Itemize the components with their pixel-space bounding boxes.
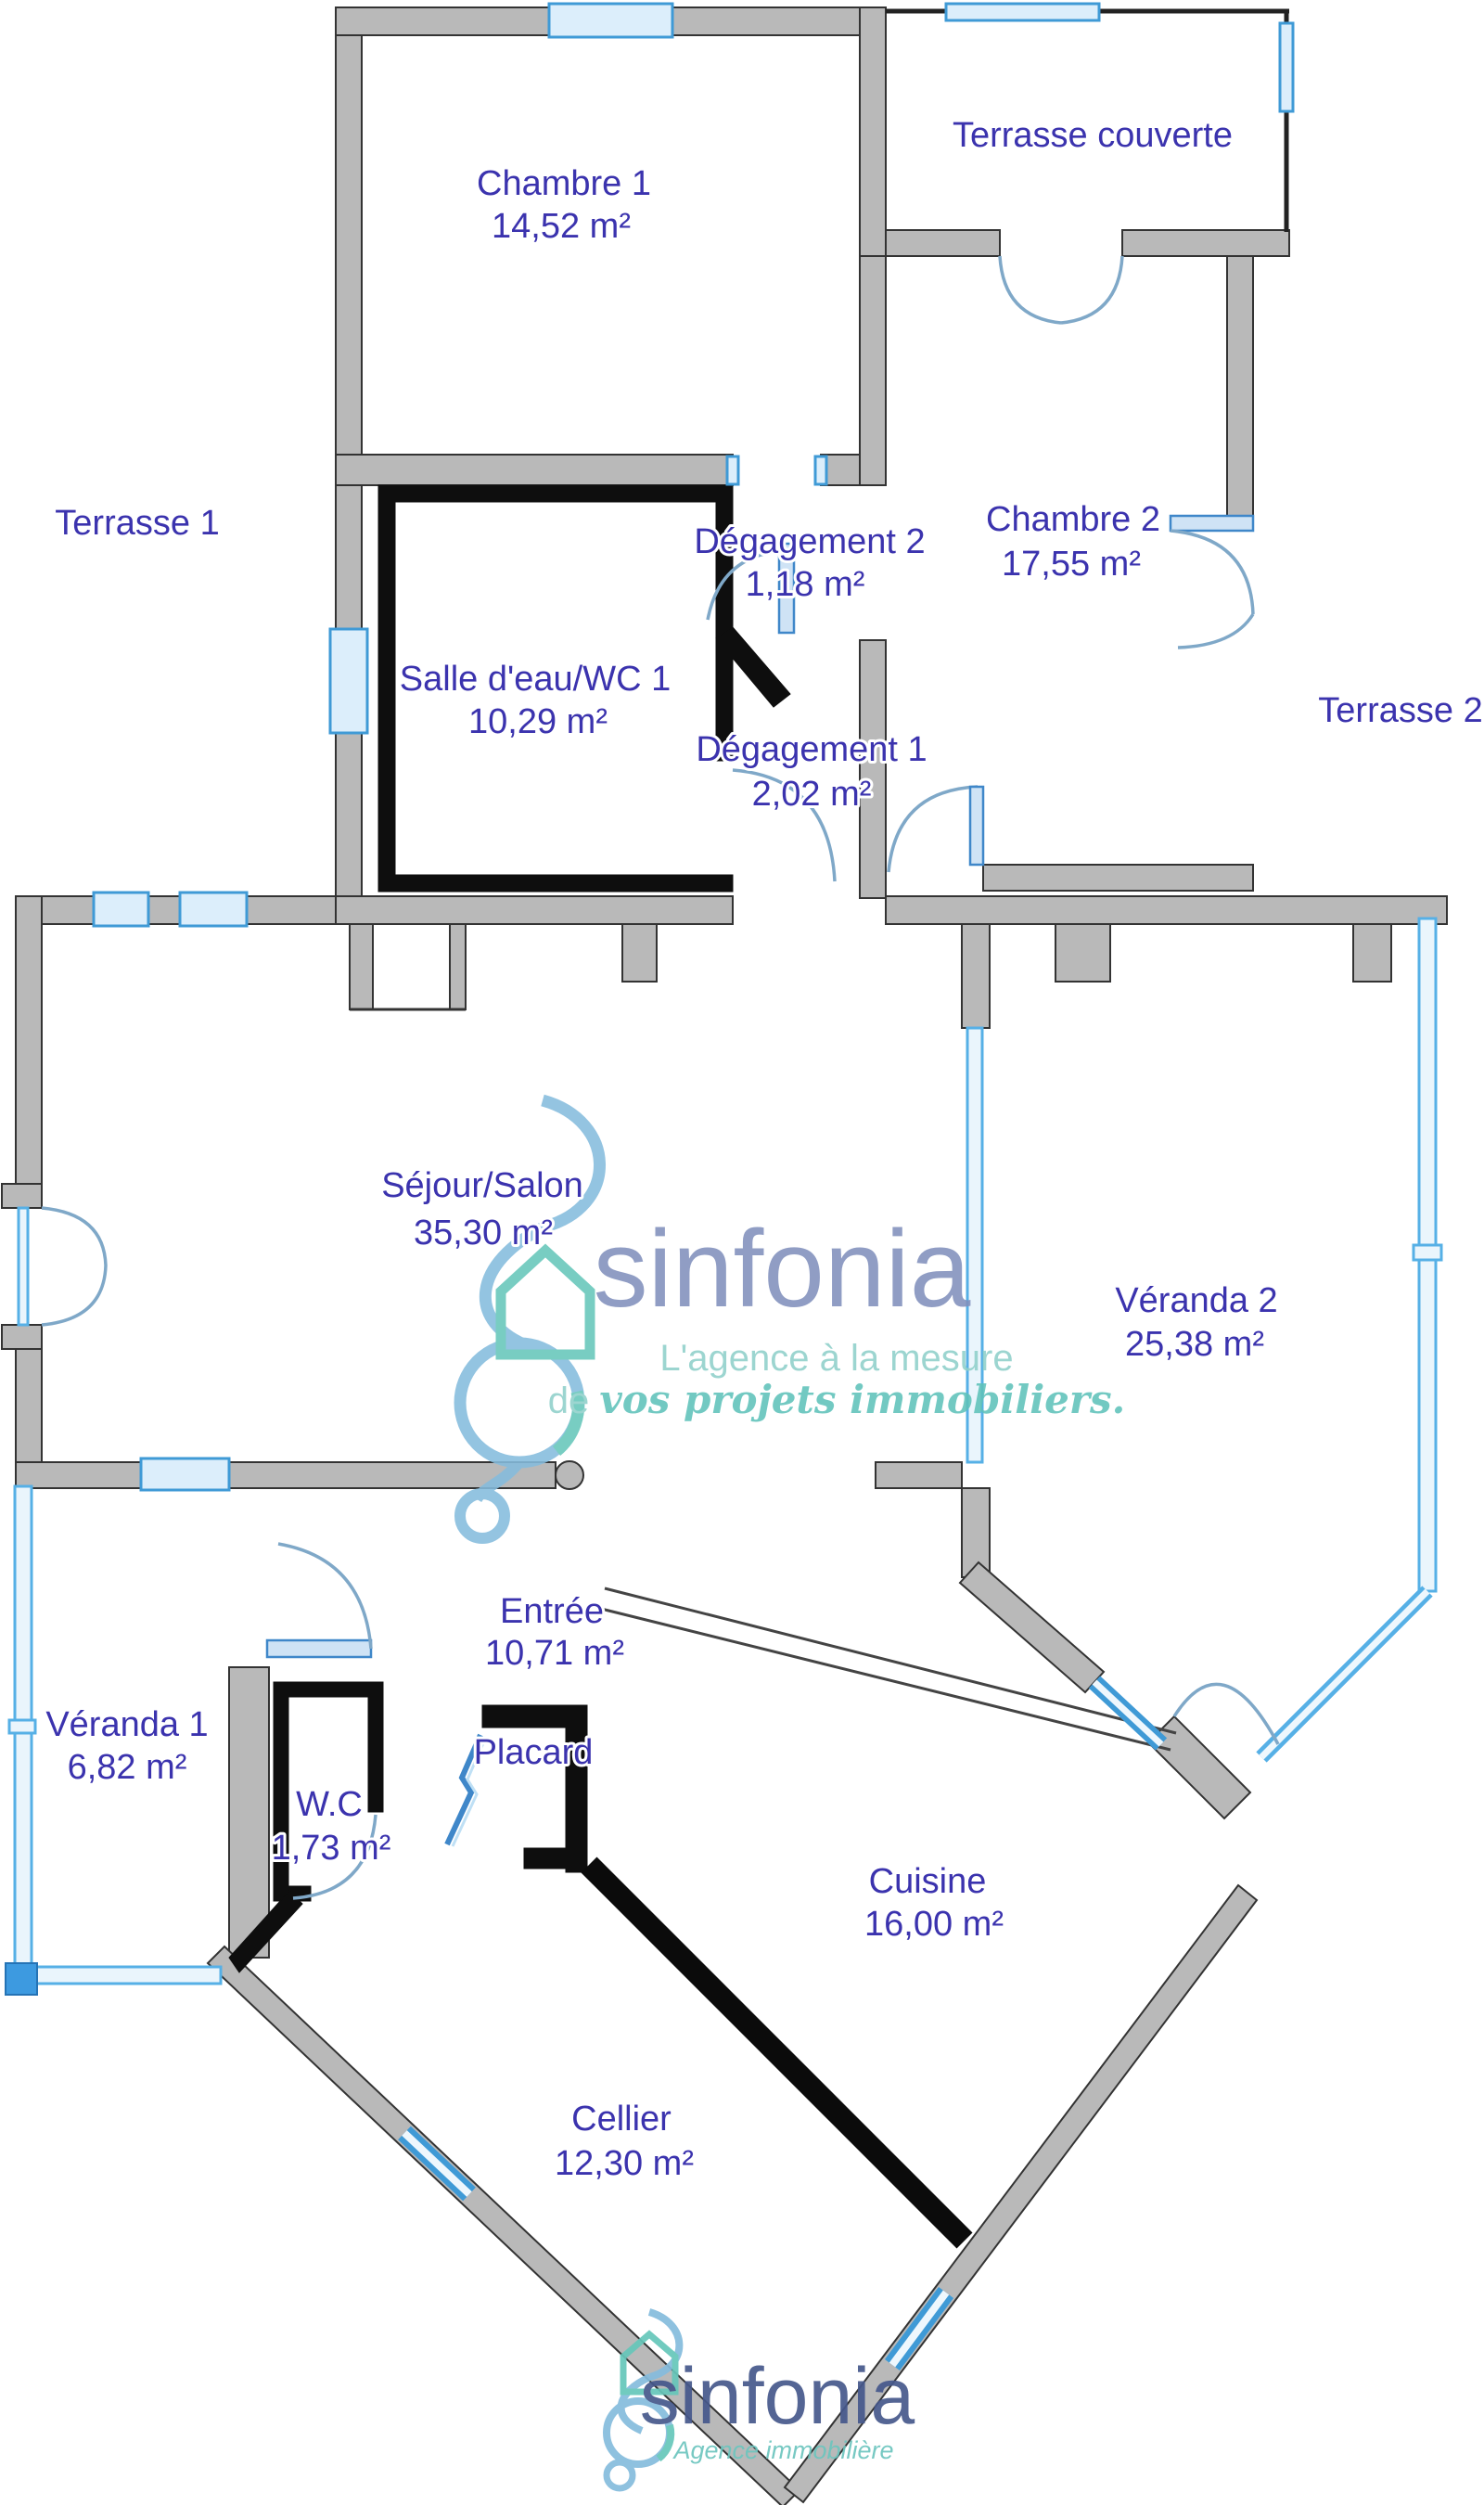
veranda-glazing (6, 918, 1441, 1995)
room-area-entree: 10,71 m² (485, 1634, 624, 1673)
room-label-terrasse-2: Terrasse 2 (1318, 691, 1482, 730)
floor-plan: sinfonia L'agence à la mesure de vos pro… (0, 0, 1484, 2505)
room-label-veranda-1: Véranda 1 (45, 1705, 208, 1744)
room-label-chambre-2: Chambre 2 (986, 500, 1160, 539)
room-label-degagement-2: Dégagement 2 (694, 522, 925, 561)
room-area-veranda-1: 6,82 m² (68, 1748, 187, 1787)
room-label-terrasse-1: Terrasse 1 (55, 504, 219, 543)
watermark-tagline-script: vos projets immobiliers. (599, 1377, 1125, 1422)
room-label-wc: W.C (296, 1785, 363, 1824)
room-area-salle-deau: 10,29 m² (468, 702, 608, 741)
floor-plan-page: sinfonia L'agence à la mesure de vos pro… (0, 0, 1484, 2505)
room-label-salle-deau: Salle d'eau/WC 1 (400, 660, 671, 699)
watermark-tagline-line2: de vos projets immobiliers. (548, 1377, 1126, 1422)
room-label-terrasse-couverte: Terrasse couverte (953, 116, 1233, 155)
watermark-tagline-prefix: de (548, 1381, 600, 1421)
room-area-degagement-1: 2,02 m² (752, 775, 872, 814)
walls-dark (229, 11, 1289, 2241)
footer-tagline: Agence immobilière (672, 2436, 893, 2464)
room-label-placard: Placard (474, 1733, 594, 1772)
room-area-cuisine: 16,00 m² (864, 1905, 1004, 1944)
room-label-sejour: Séjour/Salon (381, 1166, 583, 1205)
room-area-chambre-2: 17,55 m² (1002, 545, 1141, 584)
watermark-tagline-line1: L'agence à la mesure (659, 1338, 1013, 1379)
room-area-chambre-1: 14,52 m² (492, 207, 631, 246)
watermark-brand: sinfonia (594, 1208, 971, 1330)
room-area-wc: 1,73 m² (272, 1829, 391, 1868)
room-label-chambre-1: Chambre 1 (477, 164, 651, 203)
room-area-cellier: 12,30 m² (555, 2144, 694, 2183)
room-area-veranda-2: 25,38 m² (1125, 1325, 1264, 1364)
room-label-cuisine: Cuisine (869, 1862, 987, 1901)
watermark-footer: sinfonia Agence immobilière (607, 2312, 915, 2488)
room-area-degagement-2: 1,18 m² (746, 565, 865, 604)
room-label-entree: Entrée (500, 1592, 604, 1631)
room-label-degagement-1: Dégagement 1 (696, 730, 927, 769)
room-label-veranda-2: Véranda 2 (1115, 1281, 1277, 1320)
room-label-cellier: Cellier (571, 2100, 672, 2139)
footer-brand: sinfonia (640, 2352, 915, 2441)
room-area-sejour: 35,30 m² (414, 1214, 553, 1252)
